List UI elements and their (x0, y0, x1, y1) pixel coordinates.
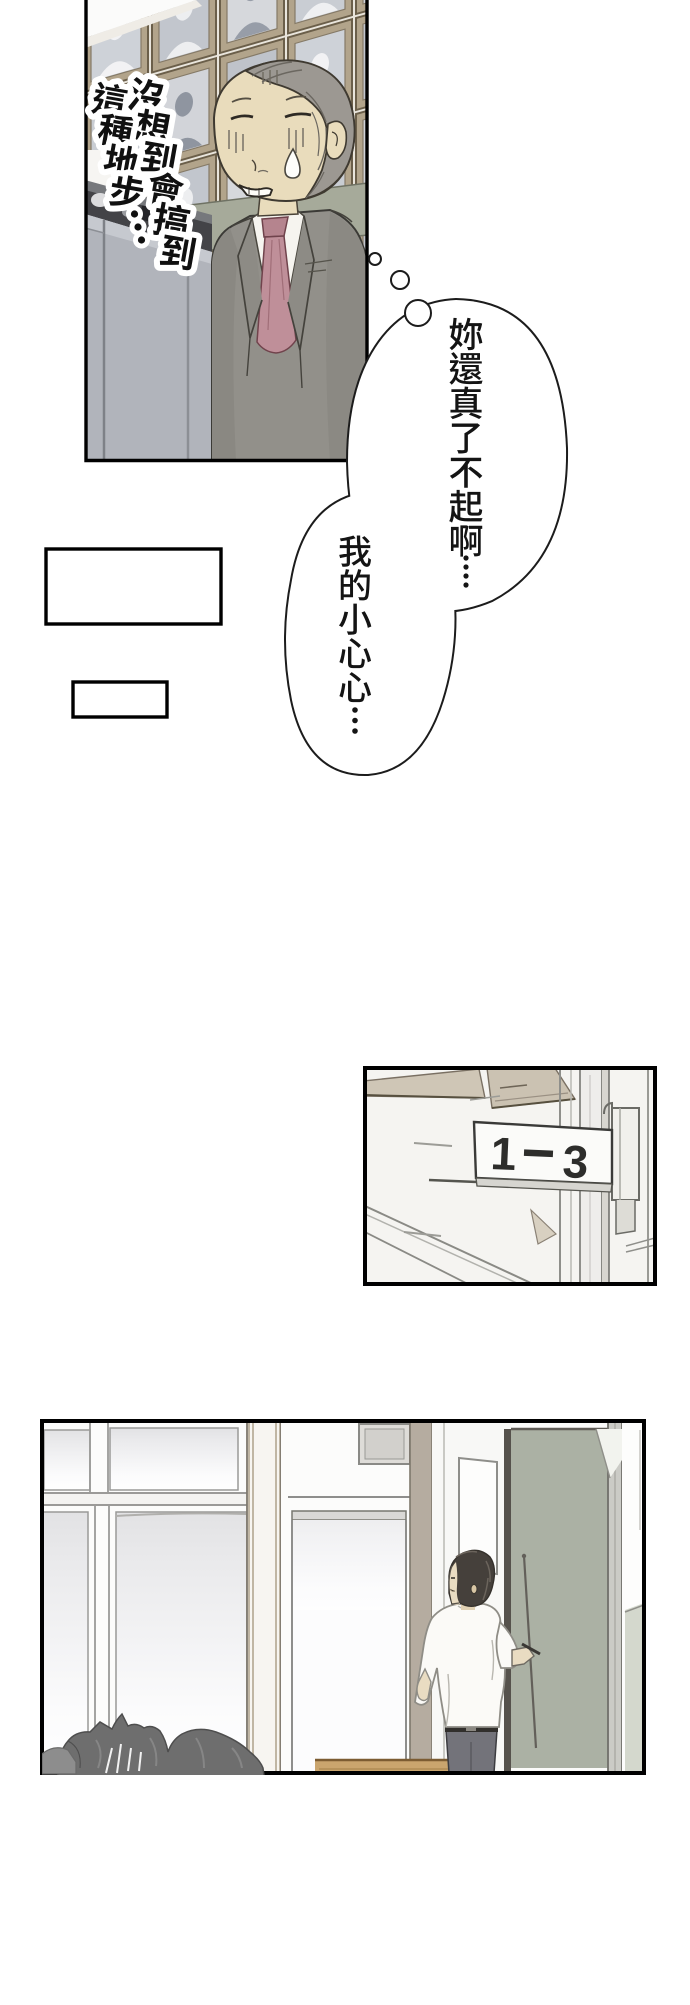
svg-text:3: 3 (562, 1135, 590, 1188)
svg-text:1: 1 (490, 1127, 518, 1180)
